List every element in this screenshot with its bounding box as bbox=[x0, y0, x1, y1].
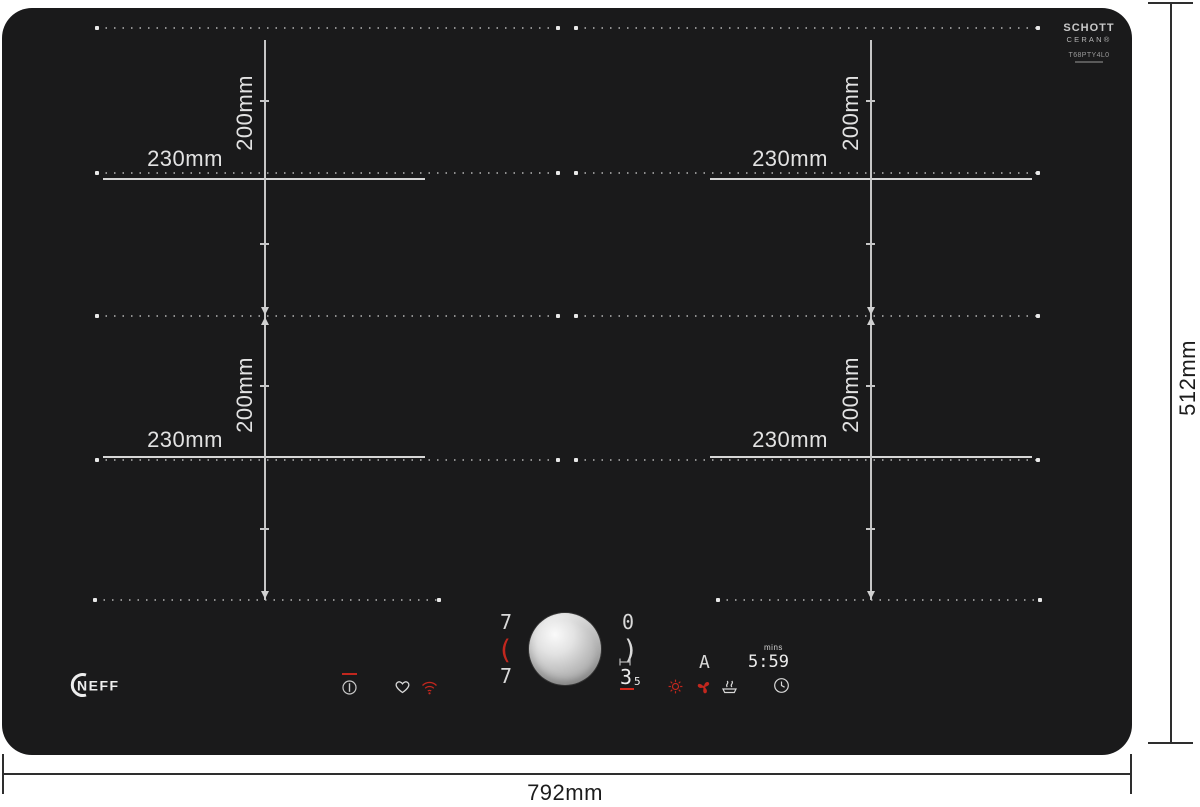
fine-print-line bbox=[1075, 61, 1103, 63]
twist-control-knob[interactable] bbox=[529, 613, 601, 685]
right-front-power-display: 3 bbox=[620, 667, 632, 687]
timer-unit-label: mins bbox=[764, 643, 783, 652]
zone-boundary-dotted-line bbox=[576, 172, 1038, 174]
zone-height-dimension-line bbox=[870, 40, 872, 316]
zone-width-label: 230mm bbox=[735, 427, 845, 453]
dimension-arrow bbox=[867, 307, 875, 315]
product-dimension-diagram: 230mm 230mm 230mm 230mm 200mm 200mm 200m… bbox=[0, 0, 1200, 807]
dimension-tick bbox=[866, 243, 875, 245]
wifi-icon[interactable] bbox=[421, 681, 438, 695]
zone-width-label: 230mm bbox=[130, 146, 240, 172]
zone-boundary-dotted-line bbox=[97, 459, 558, 461]
left-rear-power-display: 7 bbox=[500, 612, 512, 632]
brand-logo-text: NEFF bbox=[77, 678, 120, 694]
dimension-tick bbox=[260, 385, 269, 387]
overall-height-dimension-line bbox=[1170, 3, 1172, 743]
neff-logo-graphic: NEFF bbox=[64, 672, 128, 698]
brand-logo: NEFF bbox=[64, 672, 128, 703]
overall-width-label: 792mm bbox=[500, 780, 630, 806]
zone-boundary-dotted-line bbox=[718, 599, 1040, 601]
zone-boundary-dotted-line bbox=[95, 599, 439, 601]
dimension-tick bbox=[866, 528, 875, 530]
left-front-power-display: 7 bbox=[500, 666, 512, 686]
zone-height-label: 200mm bbox=[838, 357, 864, 433]
zone-height-dimension-line bbox=[264, 316, 266, 600]
dimension-arrow bbox=[867, 591, 875, 599]
zone-boundary-dotted-line bbox=[97, 27, 558, 29]
glass-brand-marking: SCHOTT CERAN® T68PTY4L0 bbox=[1058, 22, 1120, 63]
timer-clock-icon[interactable] bbox=[773, 677, 790, 694]
zone-boundary-dotted-line bbox=[97, 172, 558, 174]
overall-height-label: 512mm bbox=[1175, 340, 1200, 416]
dimension-arrow bbox=[261, 307, 269, 315]
heat-boost-icon[interactable] bbox=[667, 678, 684, 695]
dimension-end-cap bbox=[1148, 742, 1193, 744]
schott-wordmark: SCHOTT bbox=[1058, 22, 1120, 34]
ceran-wordmark: CERAN® bbox=[1058, 35, 1120, 44]
zone-height-dimension-line bbox=[264, 40, 266, 316]
dimension-tick bbox=[260, 100, 269, 102]
zone-boundary-dotted-line bbox=[97, 315, 558, 317]
dimension-arrow bbox=[261, 317, 269, 325]
zone-height-label: 200mm bbox=[232, 75, 258, 151]
dimension-tick bbox=[866, 385, 875, 387]
right-rear-power-display: 0 bbox=[622, 612, 634, 632]
model-code: T68PTY4L0 bbox=[1058, 52, 1120, 59]
dimension-end-cap bbox=[1130, 754, 1132, 794]
right-front-power-decimal: 5 bbox=[634, 676, 641, 687]
favorite-heart-icon[interactable] bbox=[394, 680, 411, 694]
zone-width-label: 230mm bbox=[735, 146, 845, 172]
ventilation-fan-icon[interactable] bbox=[695, 678, 713, 696]
main-power-icon[interactable] bbox=[342, 680, 357, 695]
dimension-tick bbox=[866, 100, 875, 102]
left-flex-bracket-indicator: ( bbox=[497, 637, 513, 664]
dimension-arrow bbox=[867, 317, 875, 325]
zone-width-label: 230mm bbox=[130, 427, 240, 453]
timer-display: 5:59 bbox=[748, 654, 789, 671]
dimension-tick bbox=[260, 528, 269, 530]
auto-heat-indicator: A bbox=[699, 654, 710, 672]
active-zone-underline bbox=[620, 688, 634, 690]
dimension-tick bbox=[260, 243, 269, 245]
overall-width-dimension-line bbox=[2, 773, 1132, 775]
dimension-end-cap bbox=[1148, 2, 1193, 4]
dimension-arrow bbox=[261, 591, 269, 599]
dimension-end-cap bbox=[2, 754, 4, 794]
zone-height-label: 200mm bbox=[232, 357, 258, 433]
power-on-indicator bbox=[342, 673, 357, 675]
induction-hob-surface: 230mm 230mm 230mm 230mm 200mm 200mm 200m… bbox=[2, 8, 1132, 755]
zone-height-label: 200mm bbox=[838, 75, 864, 151]
zone-boundary-dotted-line bbox=[576, 459, 1038, 461]
zone-height-dimension-line bbox=[870, 316, 872, 600]
zone-boundary-dotted-line bbox=[576, 27, 1038, 29]
keep-warm-icon[interactable] bbox=[721, 679, 738, 694]
zone-boundary-dotted-line bbox=[576, 315, 1038, 317]
